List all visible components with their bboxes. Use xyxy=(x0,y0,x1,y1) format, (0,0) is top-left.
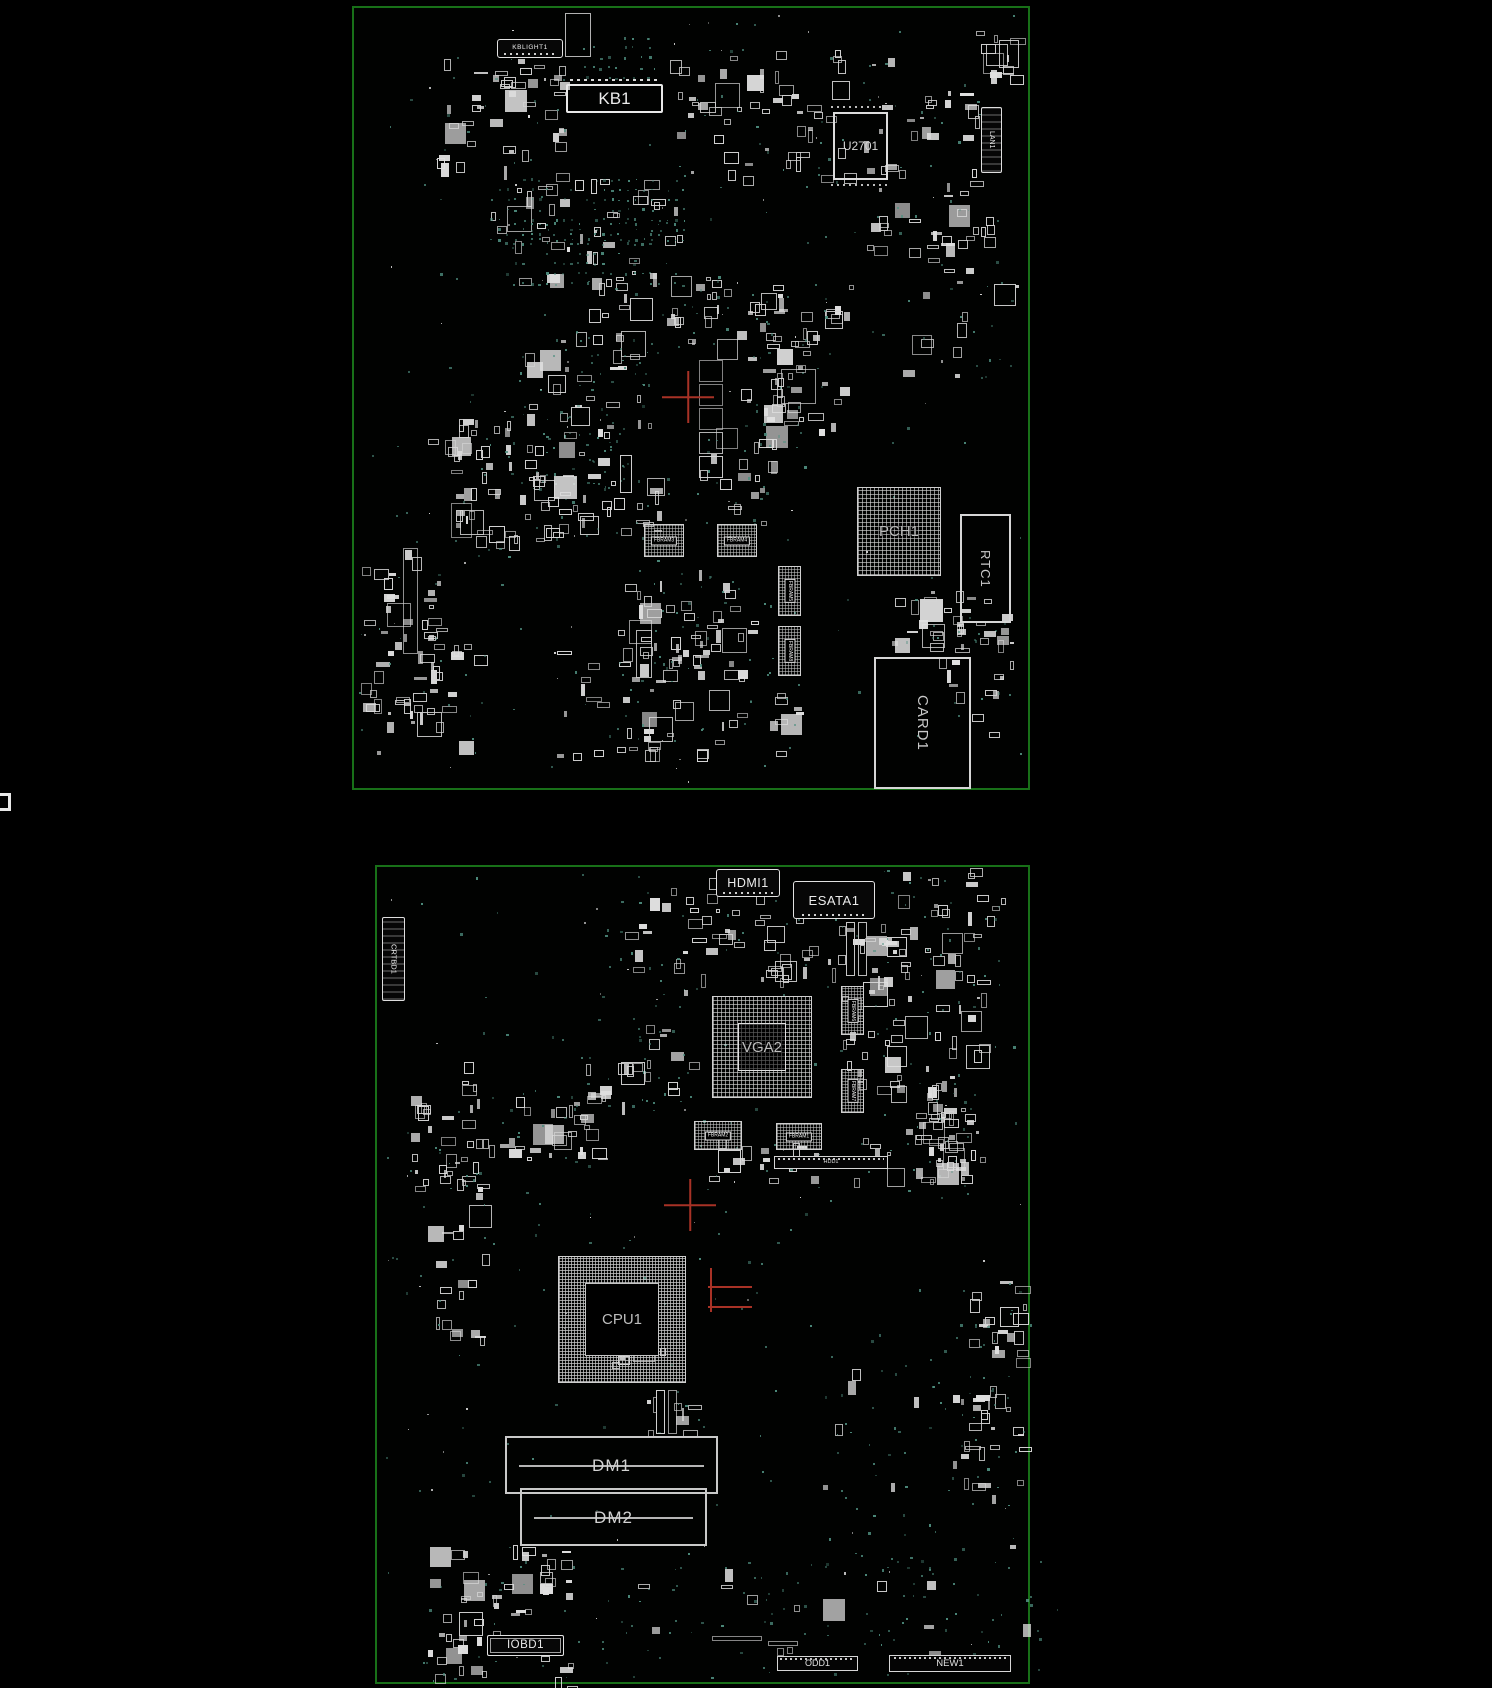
via-dot xyxy=(450,1188,452,1190)
smd-part xyxy=(968,912,972,926)
via-dot xyxy=(398,577,400,579)
via-dot xyxy=(536,471,538,473)
smd-part xyxy=(541,1656,550,1662)
via-dot xyxy=(635,239,637,241)
smd-part xyxy=(662,1029,671,1032)
via-dot xyxy=(711,1677,714,1680)
smd-part xyxy=(1023,1624,1031,1637)
via-dot xyxy=(400,638,402,640)
smd-part xyxy=(645,1072,651,1082)
smd-part xyxy=(424,598,438,602)
smd-part xyxy=(819,429,825,437)
smd-part xyxy=(566,1593,574,1601)
via-dot xyxy=(760,357,762,359)
smd-part xyxy=(429,605,435,609)
fbram3-chip[interactable]: FBRAM3 xyxy=(644,524,684,557)
via-dot xyxy=(593,483,595,485)
smd-part xyxy=(560,199,570,207)
via-dot xyxy=(449,1163,451,1165)
small-pad xyxy=(808,31,810,33)
smd-part xyxy=(527,414,534,426)
via-dot xyxy=(562,273,564,275)
via-dot xyxy=(756,1292,758,1294)
via-dot xyxy=(883,1055,885,1057)
smd-part xyxy=(489,526,506,543)
smd-part xyxy=(691,171,694,174)
via-dot xyxy=(675,1569,677,1571)
smd-part xyxy=(973,227,979,235)
via-dot xyxy=(972,1503,974,1505)
smd-part xyxy=(428,590,435,596)
via-dot xyxy=(386,1457,388,1459)
via-dot xyxy=(802,344,804,346)
smd-part xyxy=(936,970,955,989)
smd-part xyxy=(786,160,791,169)
via-dot xyxy=(929,1524,931,1526)
smd-part xyxy=(586,396,595,401)
smd-part xyxy=(835,50,842,58)
via-dot xyxy=(502,1122,504,1124)
smd-part xyxy=(903,370,915,377)
via-dot xyxy=(735,502,737,504)
via-dot xyxy=(407,1132,409,1134)
via-dot xyxy=(936,1100,938,1102)
via-dot xyxy=(973,984,975,986)
smd-part xyxy=(791,341,799,347)
new1-connector[interactable]: NEW1 xyxy=(889,1655,1011,1672)
via-dot xyxy=(1019,1291,1022,1294)
via-dot xyxy=(599,68,602,71)
via-dot xyxy=(625,46,627,48)
small-pad xyxy=(571,626,573,628)
hdmi1-connector[interactable]: HDMI1 xyxy=(716,869,780,897)
smd-part xyxy=(436,628,448,633)
via-dot xyxy=(651,199,653,201)
smd-part xyxy=(374,569,389,580)
via-dot xyxy=(658,234,660,236)
via-dot xyxy=(570,229,572,231)
via-dot xyxy=(588,281,590,283)
pch1-bga[interactable]: PCH1 xyxy=(857,487,941,576)
smd-part xyxy=(437,1657,447,1665)
smd-part xyxy=(682,1408,684,1421)
smd-part xyxy=(901,929,911,935)
smd-part xyxy=(879,223,889,228)
via-dot xyxy=(535,1234,538,1237)
smd-part xyxy=(509,91,516,97)
via-dot xyxy=(922,991,924,993)
via-dot xyxy=(462,1474,465,1477)
via-dot xyxy=(962,1548,965,1551)
small-pad xyxy=(852,1532,854,1534)
small-pad xyxy=(800,1197,802,1199)
smd-part xyxy=(936,1083,942,1091)
via-dot xyxy=(881,1370,883,1372)
smd-part xyxy=(451,1550,465,1560)
via-dot xyxy=(1030,1596,1032,1598)
via-dot xyxy=(531,238,533,240)
via-dot xyxy=(929,1567,931,1569)
via-dot xyxy=(624,57,626,59)
via-dot xyxy=(921,111,923,113)
smd-part xyxy=(494,426,500,434)
via-dot xyxy=(682,189,684,191)
smd-part xyxy=(475,420,478,429)
smd-part xyxy=(638,420,641,429)
via-dot xyxy=(904,1534,906,1536)
smd-part xyxy=(565,367,569,372)
smd-part xyxy=(916,1168,924,1179)
via-dot xyxy=(1013,1538,1015,1540)
via-dot xyxy=(536,527,538,529)
via-dot xyxy=(619,662,621,664)
smd-part xyxy=(893,950,897,955)
smd-part xyxy=(977,980,992,985)
via-dot xyxy=(634,218,636,220)
via-dot xyxy=(547,242,549,244)
via-dot xyxy=(761,1577,763,1579)
fbram8-chip[interactable]: FBRAM8 xyxy=(778,626,801,676)
smd-part xyxy=(987,225,995,236)
u2701-chip[interactable]: U2701 xyxy=(833,112,888,180)
via-dot xyxy=(845,1497,847,1499)
via-dot xyxy=(998,1645,1000,1647)
via-dot xyxy=(644,238,646,240)
smd-part xyxy=(428,636,437,641)
via-dot xyxy=(651,239,653,241)
via-dot xyxy=(538,180,540,182)
via-dot xyxy=(466,1185,468,1187)
smd-part xyxy=(747,399,751,403)
smd-part xyxy=(854,1178,860,1188)
smd-part xyxy=(495,71,508,75)
smd-part xyxy=(692,938,707,943)
via-dot xyxy=(910,1063,912,1065)
via-dot xyxy=(1023,1431,1025,1433)
crtbd1-connector[interactable]: CRTBD1 xyxy=(382,917,405,1001)
smd-part xyxy=(625,932,639,940)
via-dot xyxy=(649,1043,651,1045)
via-dot xyxy=(873,1463,875,1465)
smd-part xyxy=(944,608,952,613)
dm1-slot[interactable]: DM1 xyxy=(505,1436,718,1494)
smd-part xyxy=(627,1066,634,1077)
smd-part xyxy=(941,1114,945,1122)
smd-part xyxy=(459,741,474,756)
smd-part xyxy=(980,638,989,645)
via-dot xyxy=(651,189,653,191)
dm2-slot-label: DM2 xyxy=(594,1509,633,1526)
smd-part xyxy=(579,452,585,456)
fbram3-chip-label: FBRAM3 xyxy=(651,536,677,545)
smd-part xyxy=(578,513,594,521)
fbram1-chip[interactable]: FBRAM1 xyxy=(776,1123,822,1150)
via-dot xyxy=(718,276,721,279)
via-dot xyxy=(519,1269,521,1271)
via-dot xyxy=(476,1173,478,1175)
smd-part xyxy=(1010,1545,1015,1549)
smd-part xyxy=(471,1666,483,1675)
via-dot xyxy=(1004,623,1006,625)
via-dot xyxy=(897,1561,899,1563)
via-dot xyxy=(604,488,607,491)
smd-part xyxy=(633,967,644,972)
smd-part xyxy=(718,619,724,623)
via-dot xyxy=(507,188,509,190)
vga2-bga[interactable]: VGA2 xyxy=(712,996,812,1098)
smd-part xyxy=(938,905,948,916)
via-dot xyxy=(532,198,534,200)
via-dot xyxy=(804,466,806,468)
via-dot xyxy=(672,1589,674,1591)
via-dot xyxy=(991,1390,993,1392)
via-dot xyxy=(615,288,617,290)
via-dot xyxy=(594,263,596,265)
smd-part xyxy=(760,1164,764,1171)
smd-part xyxy=(1014,1331,1024,1344)
esata1-connector[interactable]: ESATA1 xyxy=(793,881,875,919)
smd-part xyxy=(899,949,906,956)
via-dot xyxy=(654,68,656,70)
smd-part xyxy=(811,1176,819,1184)
smd-part xyxy=(877,1581,887,1593)
smd-part xyxy=(443,1614,452,1622)
via-dot xyxy=(416,541,418,543)
smd-part xyxy=(928,879,931,881)
small-pad xyxy=(1020,1204,1022,1206)
via-dot xyxy=(1010,365,1013,368)
smd-part xyxy=(881,924,886,933)
via-dot xyxy=(718,1233,720,1235)
via-dot xyxy=(650,283,652,285)
smd-part xyxy=(476,450,484,460)
smd-part xyxy=(414,677,427,680)
smd-part xyxy=(456,494,464,499)
via-dot xyxy=(830,57,832,59)
via-dot xyxy=(611,381,614,384)
via-dot xyxy=(563,219,566,222)
via-dot xyxy=(927,1012,929,1014)
via-dot xyxy=(756,126,759,129)
smd-part xyxy=(848,1381,856,1394)
smd-part xyxy=(684,613,695,620)
via-dot xyxy=(1038,1669,1040,1671)
smd-part xyxy=(962,312,968,322)
smd-part xyxy=(527,445,533,453)
fbram4-chip[interactable]: FBRAM4 xyxy=(717,524,757,557)
smd-part xyxy=(520,68,531,74)
via-dot xyxy=(887,1567,889,1569)
dm2-slot[interactable]: DM2 xyxy=(520,1488,707,1546)
via-dot xyxy=(701,586,703,588)
via-dot xyxy=(579,253,581,255)
via-dot xyxy=(893,1639,895,1641)
smd-part xyxy=(868,1031,874,1038)
via-dot xyxy=(485,105,487,107)
via-dot xyxy=(934,117,936,119)
via-dot xyxy=(577,405,579,407)
via-dot xyxy=(764,433,767,436)
via-dot xyxy=(598,483,600,485)
via-dot xyxy=(622,360,624,362)
smd-part xyxy=(566,1580,572,1584)
via-dot xyxy=(913,896,915,898)
small-pad xyxy=(722,314,724,316)
smd-part xyxy=(751,621,759,626)
smd-part xyxy=(434,644,445,650)
cpu1-bga[interactable]: CPU1 xyxy=(558,1256,686,1383)
via-dot xyxy=(644,1058,646,1060)
via-dot xyxy=(574,1108,576,1110)
smd-part xyxy=(598,458,611,466)
via-dot xyxy=(968,210,970,212)
via-dot xyxy=(983,1344,985,1346)
via-dot xyxy=(901,215,904,218)
smd-part xyxy=(981,1413,990,1424)
card1-slot[interactable]: CARD1 xyxy=(874,657,971,789)
smd-part xyxy=(474,72,488,74)
smd-part xyxy=(927,1581,936,1590)
via-dot xyxy=(628,1595,631,1598)
fbram7-chip[interactable]: FBRAM7 xyxy=(841,1069,864,1113)
smd-part xyxy=(849,285,854,289)
kblight1-connector[interactable]: KBLIGHT1 xyxy=(497,39,563,58)
via-dot xyxy=(688,602,691,605)
smd-part xyxy=(547,274,560,283)
smd-part xyxy=(828,959,831,965)
via-dot xyxy=(638,876,640,878)
smd-part xyxy=(980,1157,986,1163)
fbram6-chip[interactable]: FBRAM6 xyxy=(841,986,864,1035)
smd-part xyxy=(957,281,963,285)
via-dot xyxy=(923,1596,925,1598)
rtc1-module[interactable]: RTC1 xyxy=(960,514,1011,623)
via-dot xyxy=(941,264,943,266)
fbram5-chip[interactable]: FBRAM5 xyxy=(778,566,801,616)
via-dot xyxy=(908,300,910,302)
via-dot xyxy=(988,1641,990,1643)
fbram2-chip[interactable]: FBRAM2 xyxy=(694,1121,742,1150)
smd-part xyxy=(995,1394,1006,1409)
via-dot xyxy=(610,273,612,275)
via-dot xyxy=(764,765,766,767)
via-dot xyxy=(933,1386,935,1388)
via-dot xyxy=(753,519,755,521)
via-dot xyxy=(635,189,637,191)
smd-part xyxy=(589,309,600,323)
smd-part xyxy=(703,650,710,655)
via-dot xyxy=(648,1589,650,1591)
via-dot xyxy=(730,50,732,52)
via-dot xyxy=(594,209,596,211)
smd-part xyxy=(571,407,590,426)
via-dot xyxy=(657,352,659,354)
via-dot xyxy=(584,66,586,68)
kb1-connector[interactable]: KB1 xyxy=(566,84,663,113)
smd-part xyxy=(451,652,464,660)
smd-part xyxy=(668,1390,677,1434)
via-dot xyxy=(887,938,889,940)
via-dot xyxy=(895,1018,897,1020)
via-dot xyxy=(767,323,769,325)
via-dot xyxy=(765,1346,767,1348)
smd-part xyxy=(981,993,987,1008)
via-dot xyxy=(804,1633,806,1635)
via-dot xyxy=(680,583,682,585)
via-dot xyxy=(625,715,627,717)
via-dot xyxy=(717,280,719,282)
smd-part xyxy=(647,1060,652,1070)
smd-part xyxy=(654,643,657,652)
via-dot xyxy=(700,664,702,666)
via-dot xyxy=(928,1113,930,1115)
via-dot xyxy=(804,1605,806,1607)
via-dot xyxy=(697,99,699,101)
smd-part xyxy=(516,1610,525,1614)
via-dot xyxy=(725,1211,727,1213)
via-dot xyxy=(949,939,952,942)
smd-part xyxy=(930,1179,934,1185)
small-pad xyxy=(734,1181,736,1183)
smd-part xyxy=(955,374,960,378)
via-dot xyxy=(650,233,653,236)
via-dot xyxy=(681,573,683,575)
via-dot xyxy=(906,641,908,643)
small-pad xyxy=(542,280,544,282)
small-pad xyxy=(427,1414,429,1416)
smd-part xyxy=(1023,1304,1027,1311)
smd-part xyxy=(525,353,535,366)
via-dot xyxy=(701,1622,704,1625)
via-dot xyxy=(555,1404,557,1406)
lan1-connector[interactable]: LAN1 xyxy=(981,107,1002,173)
smd-part xyxy=(969,1423,981,1431)
smd-part xyxy=(650,689,654,692)
via-dot xyxy=(675,273,677,275)
smd-part xyxy=(525,1609,532,1615)
via-dot xyxy=(636,522,638,524)
via-dot xyxy=(542,1125,544,1127)
via-dot xyxy=(608,1105,610,1107)
smd-part xyxy=(966,268,974,274)
via-dot xyxy=(919,1083,921,1085)
via-dot xyxy=(633,339,636,342)
via-dot xyxy=(975,1439,978,1442)
smd-part xyxy=(994,35,999,43)
via-dot xyxy=(973,1417,975,1419)
smd-part xyxy=(702,916,712,925)
iobd1-connector[interactable]: IOBD1 xyxy=(487,1635,564,1656)
small-pad xyxy=(945,1105,947,1107)
via-dot xyxy=(913,1583,915,1585)
smd-part xyxy=(944,195,953,198)
via-dot xyxy=(628,180,630,182)
smd-part xyxy=(674,207,677,216)
via-dot xyxy=(565,1157,567,1159)
via-dot xyxy=(771,333,774,336)
smd-part xyxy=(960,93,974,96)
small-pad xyxy=(737,282,739,284)
smd-part xyxy=(933,956,945,966)
smd-part xyxy=(872,64,876,66)
odd1-connector[interactable]: ODD1 xyxy=(777,1656,858,1671)
fbram2-chip-label: FBRAM2 xyxy=(705,1131,731,1140)
hdd1-connector[interactable]: HDD1 xyxy=(774,1156,888,1169)
via-dot xyxy=(649,144,651,146)
via-dot xyxy=(664,1093,667,1096)
small-pad xyxy=(436,159,438,161)
via-dot xyxy=(392,1257,394,1259)
